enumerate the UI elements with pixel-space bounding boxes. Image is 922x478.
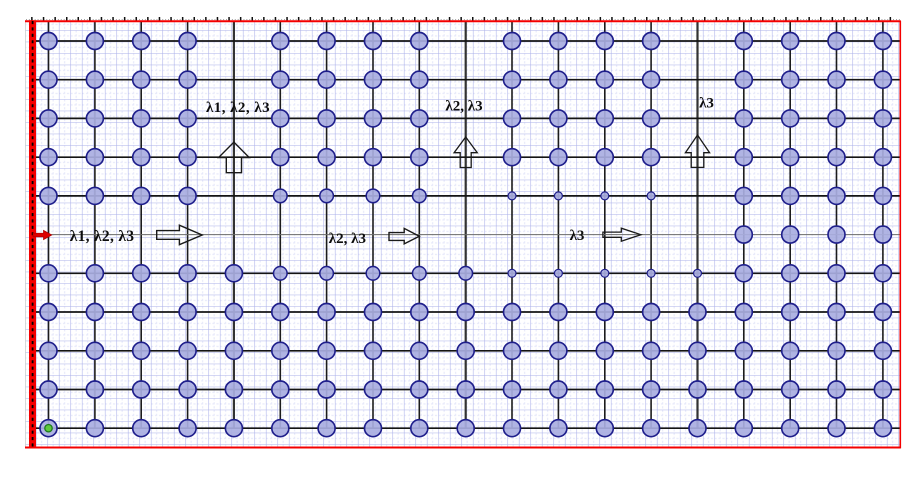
svg-text:λ2, λ3: λ2, λ3 [329, 231, 366, 247]
svg-text:λ1, λ2, λ3: λ1, λ2, λ3 [70, 228, 135, 245]
svg-text:λ1, λ2, λ3: λ1, λ2, λ3 [206, 100, 270, 116]
svg-text:λ3: λ3 [699, 96, 714, 112]
svg-text:λ3: λ3 [570, 228, 585, 244]
svg-text:λ2, λ3: λ2, λ3 [445, 99, 482, 115]
